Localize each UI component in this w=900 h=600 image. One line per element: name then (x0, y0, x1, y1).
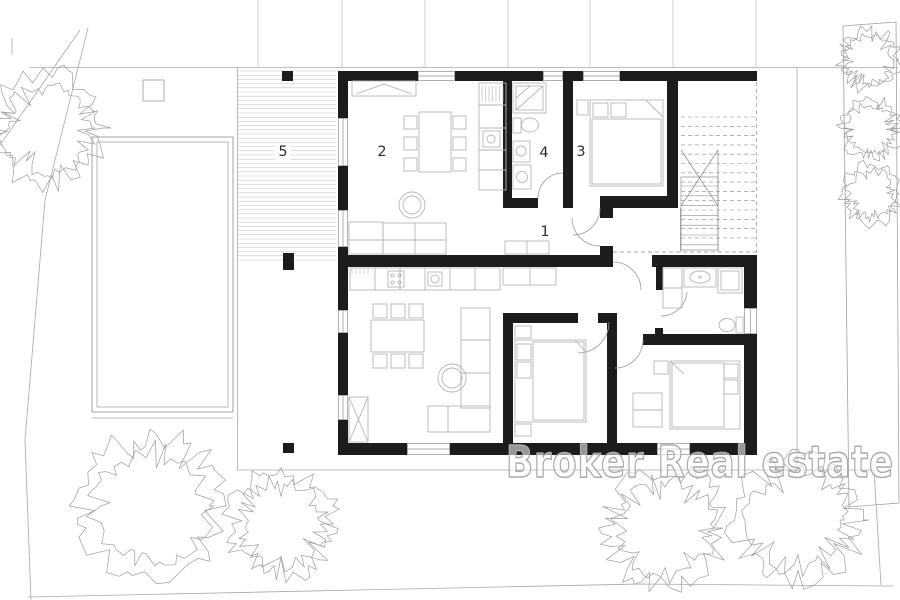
walls (338, 71, 757, 455)
tree-icon (836, 26, 900, 93)
toilet-icon (513, 118, 539, 133)
tree-icon (844, 167, 896, 221)
floor-plan-page: 2 4 3 1 5 Broker Real estate (0, 0, 900, 600)
deck-column (282, 71, 293, 81)
hob-icon (388, 271, 404, 287)
boundary-left (25, 28, 88, 600)
roof-grid-lines (258, 0, 756, 67)
deck-terrace (238, 71, 337, 453)
door-arc-bedroom-right (615, 340, 643, 368)
chair (373, 304, 387, 318)
washing-machine-icon (513, 165, 531, 189)
chair (404, 137, 417, 150)
pillow (724, 364, 738, 378)
pillow (724, 380, 738, 394)
cabinet-upper (352, 81, 416, 96)
pillow (517, 362, 531, 378)
pillow (593, 103, 608, 117)
chair (453, 158, 466, 171)
door-arc-bedroom-3 (573, 208, 600, 235)
bed-bedroom-right (670, 361, 740, 429)
chair (391, 354, 405, 368)
garden (0, 22, 900, 592)
wardrobe-lower (349, 397, 368, 442)
toilet-icon (719, 317, 743, 333)
pool-inner (97, 142, 228, 407)
plant-upper (399, 192, 425, 218)
hedge-strip (843, 22, 899, 507)
nightstand (654, 361, 668, 374)
tree-icon (843, 34, 895, 88)
trees (0, 26, 900, 592)
washbasin-icon (684, 268, 716, 287)
room-label-3: 3 (576, 144, 585, 160)
dresser-right-bedroom (633, 393, 662, 427)
room-label-1: 1 (540, 224, 549, 240)
tree-icon (239, 476, 328, 571)
sofa-upper (349, 222, 446, 254)
chair (453, 137, 466, 150)
site-boundaries (0, 0, 898, 600)
kitchen-counter-upper (479, 83, 506, 190)
floor-plan-drawing: 2 4 3 1 5 Broker Real estate (0, 0, 900, 600)
tree-icon (69, 429, 226, 584)
sink-icon (428, 272, 442, 286)
tree-icon (611, 474, 718, 584)
washbasin-icon (513, 141, 530, 162)
bed-bedroom-middle (515, 340, 586, 422)
blanket-fold (646, 100, 663, 117)
door-arc-bathroom-4 (538, 173, 563, 198)
bath-cabinet (663, 268, 682, 308)
room-label-5: 5 (278, 144, 287, 160)
plant-lower (438, 364, 466, 392)
dining-table-upper (404, 112, 466, 172)
bed-bedroom-3 (590, 100, 663, 186)
chair (404, 158, 417, 171)
shower-icon (513, 83, 546, 113)
stair-lower-flight (681, 177, 718, 250)
planter (143, 80, 164, 101)
pillow (517, 344, 531, 360)
pool-outer (92, 137, 233, 412)
chair (373, 354, 387, 368)
stairs (613, 82, 757, 252)
shower-icon (718, 268, 742, 293)
counter-hatch (352, 268, 368, 274)
room-label-4: 4 (539, 145, 548, 161)
chair (409, 304, 423, 318)
building: 2 4 3 1 5 (275, 71, 757, 455)
pillow (611, 103, 626, 117)
tree-icon (86, 440, 214, 566)
deck-column (283, 443, 294, 453)
fridge-hatch (482, 86, 503, 102)
deck-hatch (238, 71, 337, 260)
chair (409, 354, 423, 368)
boundary-bottom (28, 584, 893, 597)
chair (391, 304, 405, 318)
door-arc-entry-lower (613, 262, 641, 290)
door-arc-bathroom-lower (661, 292, 687, 316)
nightstand (515, 424, 531, 436)
nightstand (515, 326, 531, 338)
chair (404, 116, 417, 129)
deck-column (283, 253, 294, 270)
hall-sideboard (505, 241, 549, 254)
nightstand (577, 100, 588, 115)
chair (453, 116, 466, 129)
watermark-text: Broker Real estate (506, 437, 894, 488)
sink-icon (483, 131, 500, 147)
dining-table-lower (371, 304, 424, 368)
room-label-2: 2 (377, 144, 386, 160)
sofa-lower (428, 308, 490, 432)
kitchen-counter-lower (350, 268, 556, 290)
